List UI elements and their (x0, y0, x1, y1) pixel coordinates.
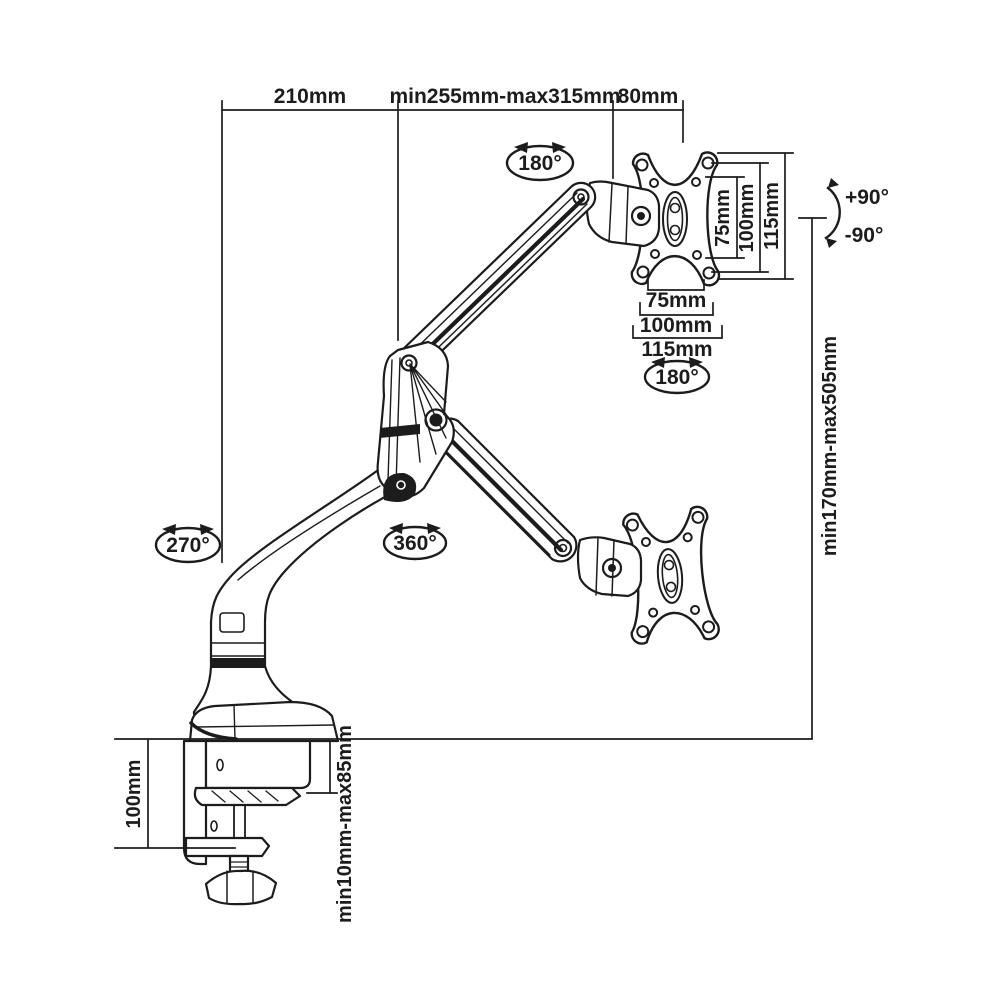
lower-arm-spring-line (452, 427, 568, 543)
dim-label-height-range: min170mm-max505mm (819, 336, 841, 556)
angle-label-elbow: 360° (393, 532, 436, 555)
dim-label-lower-arm-reach: 210mm (274, 85, 346, 108)
riser-collar-band (211, 658, 265, 668)
dim-label-vesa-horizontal-115: 115mm (641, 338, 712, 361)
upper-arm-spring-line-thick (411, 199, 583, 365)
technical-drawing-page: 210mm min255mm-max315mm 80mm 75mm 100mm … (0, 0, 1000, 1000)
tilt-arc (826, 188, 840, 238)
tilt-arrowhead-up (828, 178, 839, 188)
dim-label-tilt-down: -90° (845, 224, 884, 247)
dim-label-vesa-horizontal-100: 100mm (640, 314, 712, 337)
dim-label-vesa-horizontal-75: 75mm (646, 289, 707, 312)
dim-label-tilt-up: +90° (845, 186, 889, 209)
lower-arm-spring-line-thick (445, 434, 561, 550)
riser-column (194, 468, 402, 714)
desk-thickness-dim (307, 741, 337, 793)
elbow-bolt (430, 414, 443, 427)
dim-label-clamp-height: 100mm (123, 760, 145, 829)
lower-arm-segment (434, 419, 577, 562)
base-seam (234, 705, 235, 740)
clamp-wing-knob (206, 871, 276, 904)
dim-label-vesa-vertical-75: 75mm (712, 189, 734, 247)
angle-label-vesa: 180° (655, 366, 698, 389)
clamp-upper-jaw (206, 741, 310, 788)
dim-label-vesa-vertical-100: 100mm (736, 184, 758, 253)
bottom-head-joint (578, 537, 641, 596)
tilt-arrowhead-down (826, 238, 837, 248)
lower-arm-body (434, 419, 577, 562)
clamp-pad (195, 788, 300, 805)
dim-label-desk-thickness: min10mm-max85mm (334, 725, 356, 923)
upper-arm-spring-line (415, 204, 587, 370)
top-head-bolt-center (637, 212, 645, 220)
angle-label-base: 270° (166, 534, 209, 557)
dim-label-upper-arm-range: min255mm-max315mm (389, 85, 620, 108)
clamp-screw-shaft-lower (230, 856, 248, 872)
desk-clamp (184, 741, 310, 904)
elbow-joint (378, 342, 454, 502)
monitor-arm (184, 152, 720, 904)
clamp-lower-jaw (186, 838, 269, 856)
top-head-block (587, 182, 659, 247)
top-head-joint (587, 182, 659, 247)
upper-arm-spring-line (405, 193, 577, 359)
monitor-arm-technical-drawing: 210mm min255mm-max315mm 80mm 75mm 100mm … (0, 0, 1000, 1000)
dim-label-head-offset: 80mm (618, 85, 679, 108)
bottom-head-bolt-center (608, 564, 616, 572)
clamp-screw-shaft-upper (234, 805, 245, 838)
clamp-back-hole (211, 821, 217, 831)
angle-label-top-joint: 180° (518, 152, 561, 175)
dim-label-vesa-vertical-115: 115mm (761, 182, 783, 250)
